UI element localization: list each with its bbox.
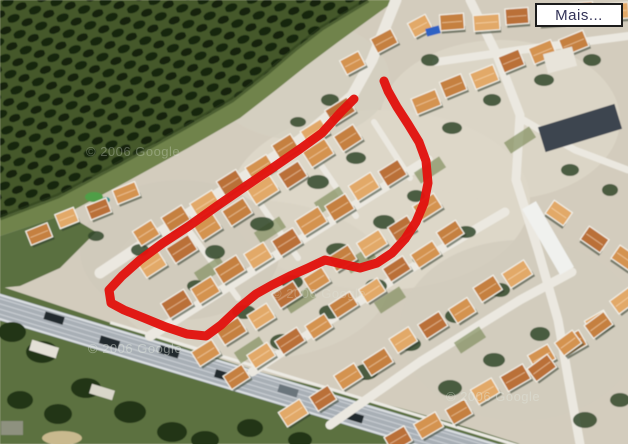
- satellite-image[interactable]: © 2006 Google© 2006 Google© 2006 Google©…: [0, 0, 628, 444]
- google-watermark: © 2006 Google: [86, 144, 180, 159]
- bush: [250, 217, 274, 231]
- bush: [483, 353, 505, 367]
- satellite-map-view[interactable]: © 2006 Google© 2006 Google© 2006 Google©…: [0, 0, 628, 444]
- mais-button-label: Mais...: [555, 7, 603, 24]
- google-watermark: © 2006 Google: [88, 341, 182, 356]
- house: [439, 13, 465, 34]
- bush: [421, 54, 439, 66]
- tree: [157, 422, 187, 442]
- house: [473, 14, 501, 35]
- bush: [583, 54, 601, 66]
- google-watermark: © 2006 Google: [446, 389, 540, 404]
- tree: [7, 391, 33, 409]
- house: [505, 7, 530, 28]
- bush: [602, 184, 618, 196]
- mais-button[interactable]: Mais...: [535, 3, 623, 27]
- bush: [205, 245, 225, 259]
- google-watermark: © 2006 Google: [272, 286, 366, 301]
- bush: [307, 175, 329, 189]
- tree: [237, 419, 263, 437]
- bush: [442, 122, 462, 134]
- tree: [114, 401, 146, 423]
- bush: [561, 164, 579, 176]
- bush: [483, 94, 501, 106]
- bush: [88, 231, 104, 241]
- bush: [534, 74, 554, 86]
- scenery: [0, 0, 628, 444]
- bush: [290, 117, 306, 127]
- bush: [346, 152, 366, 164]
- bush: [573, 412, 597, 428]
- tree: [44, 404, 72, 424]
- bush: [530, 327, 550, 341]
